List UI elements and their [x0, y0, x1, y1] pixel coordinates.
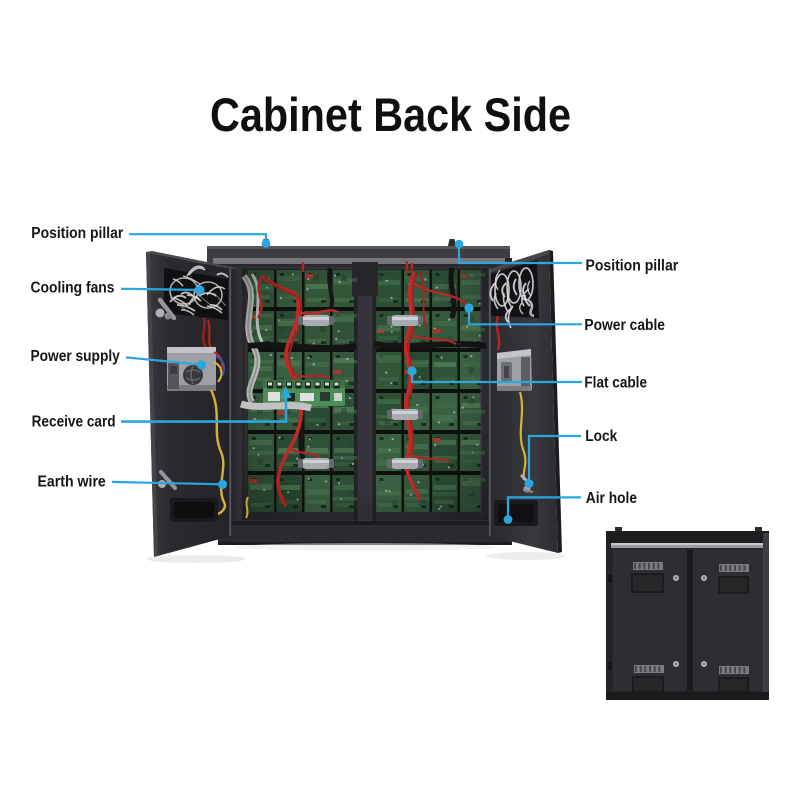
svg-text:Lock: Lock	[585, 428, 617, 445]
svg-text:Earth wire: Earth wire	[38, 473, 107, 490]
svg-text:Cabinet Back Side: Cabinet Back Side	[210, 88, 571, 141]
svg-text:Position pillar: Position pillar	[31, 225, 123, 242]
svg-text:Cooling fans: Cooling fans	[31, 279, 115, 296]
svg-text:Power supply: Power supply	[31, 348, 121, 365]
svg-text:Flat cable: Flat cable	[584, 374, 647, 391]
svg-text:Power cable: Power cable	[584, 317, 665, 334]
svg-text:Receive card: Receive card	[32, 413, 116, 430]
svg-text:Position pillar: Position pillar	[586, 257, 679, 274]
svg-text:Air hole: Air hole	[586, 490, 638, 507]
